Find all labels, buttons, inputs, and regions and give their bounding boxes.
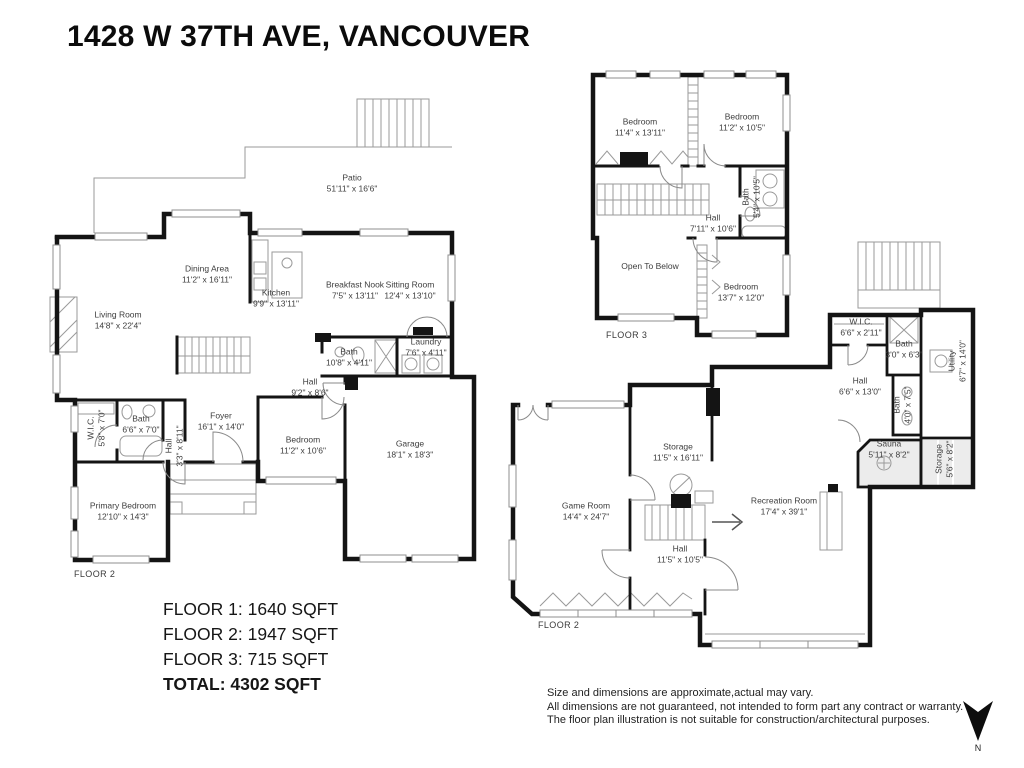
room-dims: 14'4" x 24'7"	[562, 511, 610, 522]
room-name: W.I.C.	[86, 409, 97, 446]
room-label-hall2-basement: Hall 6'6" x 13'0"	[839, 376, 881, 397]
room-label-sauna: Sauna 5'11" x 8'2"	[868, 439, 909, 460]
room-name: Bedroom	[719, 112, 765, 123]
room-name: Open To Below	[621, 261, 679, 272]
room-dims: 4'0" x 7'5"	[902, 386, 913, 423]
summary-total: TOTAL: 4302 SQFT	[163, 672, 338, 697]
room-name: Bath	[122, 414, 159, 425]
room-label-wic-main: W.I.C. 5'8" x 7'0"	[86, 409, 107, 446]
summary-floor2: FLOOR 2: 1947 SQFT	[163, 622, 338, 647]
room-dims: 5'8" x 7'0"	[96, 409, 107, 446]
room-dims: 10'8" x 4'11"	[326, 357, 372, 368]
room-name: Hall	[839, 376, 881, 387]
room-label-wic-basement: W.I.C. 6'6" x 2'11"	[840, 317, 881, 338]
room-label-bedroom-b: Bedroom 11'2" x 10'5"	[719, 112, 765, 133]
room-name: W.I.C.	[840, 317, 881, 328]
room-dims: 9'2" x 8'6"	[291, 387, 328, 398]
disclaimer-line2: All dimensions are not guaranteed, not i…	[547, 701, 963, 715]
floor-tag-upper: FLOOR 3	[606, 330, 647, 340]
room-dims: 14'8" x 22'4"	[94, 320, 141, 331]
disclaimer-line3: The floor plan illustration is not suita…	[547, 714, 963, 728]
room-name: Dining Area	[182, 264, 232, 275]
room-name: Storage	[934, 440, 945, 477]
room-label-bedroom-a: Bedroom 11'4" x 13'11"	[615, 117, 665, 138]
room-name: Utility	[947, 340, 958, 382]
room-name: Bedroom	[280, 435, 326, 446]
room-name: Garage	[387, 439, 434, 450]
room-dims: 6'6" x 2'11"	[840, 327, 881, 338]
room-dims: 5'6" x 8'2"	[944, 440, 955, 477]
room-dims: 12'10" x 14'3"	[90, 511, 156, 522]
room-label-open-to-below: Open To Below	[621, 261, 679, 272]
room-dims: 3'3" x 8'11"	[174, 425, 185, 466]
room-dims: 11'2" x 16'11"	[182, 274, 232, 285]
room-dims: 11'2" x 10'5"	[719, 122, 765, 133]
floor-tag-basement: FLOOR 2	[538, 620, 579, 630]
room-name: Kitchen	[253, 288, 299, 299]
room-dims: 6'6" x 13'0"	[839, 386, 881, 397]
room-name: Game Room	[562, 501, 610, 512]
disclaimer-line1: Size and dimensions are approximate,actu…	[547, 687, 963, 701]
room-label-sitting-room: Sitting Room 12'4" x 13'10"	[384, 280, 435, 301]
room-label-game-room: Game Room 14'4" x 24'7"	[562, 501, 610, 522]
room-label-living-room: Living Room 14'8" x 22'4"	[94, 310, 141, 331]
room-name: Bath	[892, 386, 903, 423]
floorplan-page: 1428 W 37TH AVE, VANCOUVER	[0, 0, 1024, 768]
room-label-dining: Dining Area 11'2" x 16'11"	[182, 264, 232, 285]
room-dims: 5'11" x 8'2"	[868, 449, 909, 460]
room-label-storage: Storage 11'5" x 16'11"	[653, 442, 703, 463]
room-label-hall-main: Hall 9'2" x 8'6"	[291, 377, 328, 398]
room-name: Hall	[657, 544, 703, 555]
room-name: Hall	[291, 377, 328, 388]
room-label-garage: Garage 18'1" x 18'3"	[387, 439, 434, 460]
room-name: Sitting Room	[384, 280, 435, 291]
disclaimer: Size and dimensions are approximate,actu…	[547, 687, 963, 728]
floor-tag-main: FLOOR 2	[74, 569, 115, 579]
room-dims: 18'1" x 18'3"	[387, 449, 434, 460]
room-dims: 12'4" x 13'10"	[384, 290, 435, 301]
room-name: Sauna	[868, 439, 909, 450]
room-dims: 11'2" x 10'6"	[280, 445, 326, 456]
room-label-storage-small: Storage 5'6" x 8'2"	[934, 440, 955, 477]
room-name: Storage	[653, 442, 703, 453]
room-dims: 3'0" x 6'3"	[885, 349, 922, 360]
room-label-patio: Patio 51'11" x 16'6"	[327, 173, 378, 194]
room-label-foyer: Foyer 16'1" x 14'0"	[198, 411, 245, 432]
room-dims: 13'7" x 12'0"	[718, 292, 765, 303]
room-name: Hall	[164, 425, 175, 466]
area-summary: FLOOR 1: 1640 SQFT FLOOR 2: 1947 SQFT FL…	[163, 597, 338, 697]
room-dims: 11'5" x 16'11"	[653, 452, 703, 463]
room-dims: 6'6" x 7'0"	[122, 424, 159, 435]
room-name: Bedroom	[615, 117, 665, 128]
room-name: Bath	[326, 347, 372, 358]
room-label-hall-upper: Hall 7'11" x 10'6"	[690, 213, 736, 234]
room-label-recreation-room: Recreation Room 17'4" x 39'1"	[751, 496, 817, 517]
room-dims: 9'9" x 13'11"	[253, 298, 299, 309]
room-label-bath-top: Bath 3'0" x 6'3"	[885, 339, 922, 360]
room-label-primary-bedroom: Primary Bedroom 12'10" x 14'3"	[90, 501, 156, 522]
room-name: Primary Bedroom	[90, 501, 156, 512]
room-label-breakfast-nook: Breakfast Nook 7'5" x 13'11"	[326, 280, 384, 301]
room-dims: 17'4" x 39'1"	[751, 506, 817, 517]
room-dims: 6'7" x 14'0"	[957, 340, 968, 382]
room-name: Hall	[690, 213, 736, 224]
summary-floor1: FLOOR 1: 1640 SQFT	[163, 597, 338, 622]
room-dims: 7'5" x 13'11"	[326, 290, 384, 301]
room-name: Bath	[885, 339, 922, 350]
room-label-kitchen: Kitchen 9'9" x 13'11"	[253, 288, 299, 309]
room-dims: 7'6" x 4'11"	[405, 347, 446, 358]
room-name: Recreation Room	[751, 496, 817, 507]
room-dims: 16'1" x 14'0"	[198, 421, 245, 432]
room-dims: 5'4" x 10'5"	[751, 176, 762, 218]
room-label-bedroom-main: Bedroom 11'2" x 10'6"	[280, 435, 326, 456]
room-name: Patio	[327, 173, 378, 184]
room-label-bath-left: Bath 6'6" x 7'0"	[122, 414, 159, 435]
room-name: Living Room	[94, 310, 141, 321]
room-name: Bath	[741, 176, 752, 218]
room-name: Bedroom	[718, 282, 765, 293]
north-arrow-icon	[963, 701, 993, 741]
room-dims: 7'11" x 10'6"	[690, 223, 736, 234]
room-name: Breakfast Nook	[326, 280, 384, 291]
room-label-hall-basement: Hall 11'5" x 10'5"	[657, 544, 703, 565]
room-dims: 51'11" x 16'6"	[327, 183, 378, 194]
room-name: Foyer	[198, 411, 245, 422]
upper-floor-black-accents	[620, 152, 648, 166]
north-label: N	[975, 743, 982, 753]
room-label-laundry: Laundry 7'6" x 4'11"	[405, 337, 446, 358]
room-label-hall-small: Hall 3'3" x 8'11"	[164, 425, 185, 466]
room-dims: 11'5" x 10'5"	[657, 554, 703, 565]
room-label-bath-upper: Bath 5'4" x 10'5"	[741, 176, 762, 218]
room-label-utility: Utility 6'7" x 14'0"	[947, 340, 968, 382]
room-label-bedroom-c: Bedroom 13'7" x 12'0"	[718, 282, 765, 303]
room-label-bath-center: Bath 10'8" x 4'11"	[326, 347, 372, 368]
room-name: Laundry	[405, 337, 446, 348]
room-dims: 11'4" x 13'11"	[615, 127, 665, 138]
room-label-bath-small: Bath 4'0" x 7'5"	[892, 386, 913, 423]
summary-floor3: FLOOR 3: 715 SQFT	[163, 647, 338, 672]
